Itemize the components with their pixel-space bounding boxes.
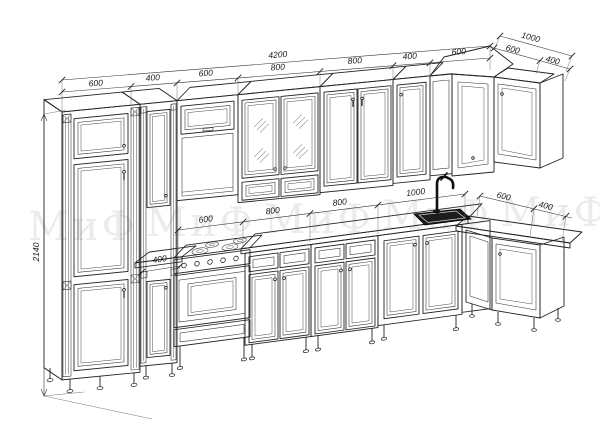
base-cabinet-800-1 [245,245,311,361]
pantry-door-bottom [74,279,128,370]
dim-label: 800 [347,55,362,66]
dim-label: 400 [545,53,562,66]
dim-return-chain: 600 400 [491,42,573,72]
column-door-lower [147,279,170,357]
base-cabinet-800-2 [311,236,378,352]
column-door-upper [147,109,170,207]
glass-mark [254,118,269,163]
dim-label: 400 [402,50,417,61]
dim-label: 800 [332,196,348,208]
sink-base-cabinet [378,224,462,341]
dim-label: 600 [198,213,214,225]
corner-upper-cabinet-side [430,74,452,176]
glass-door-right [281,93,318,175]
stove-drawer [174,320,250,347]
glass-mark [293,114,308,159]
pantry-door-top [74,113,128,158]
upper-cabinet-400 [393,63,443,184]
dim-label: 800 [265,205,281,217]
kitchen-drawing: МиФ МиФ МиФ МиФ МиФ [0,0,600,424]
glass-upper-cabinet [238,73,333,202]
glass-door-left [242,97,279,179]
hood-cabinet [177,81,251,200]
corner-upper-cabinet [452,74,494,176]
flip-door [181,101,234,134]
dim-label: 800 [270,61,285,72]
dim-label: 4200 [268,49,288,60]
dim-height: 2140 [31,114,47,396]
dim-label: 600 [505,42,522,55]
upper-end-panel [540,74,563,168]
dim-label: 600 [496,190,512,203]
return-upper-cabinet [494,68,554,168]
base-end-panel [540,237,564,318]
dim-label: 400 [145,72,160,83]
corner-base-door [466,230,492,310]
oven-door [174,266,250,328]
dim-label: 2140 [31,242,41,262]
dim-label: 400 [152,253,168,265]
watermark-text: МиФ [28,204,138,250]
dim-label: 600 [451,46,466,57]
dim-label: 600 [198,67,213,78]
hood-niche [182,133,233,196]
return-legs [470,304,561,331]
dim-label: 600 [88,77,103,88]
return-base-cabinet [492,238,540,318]
